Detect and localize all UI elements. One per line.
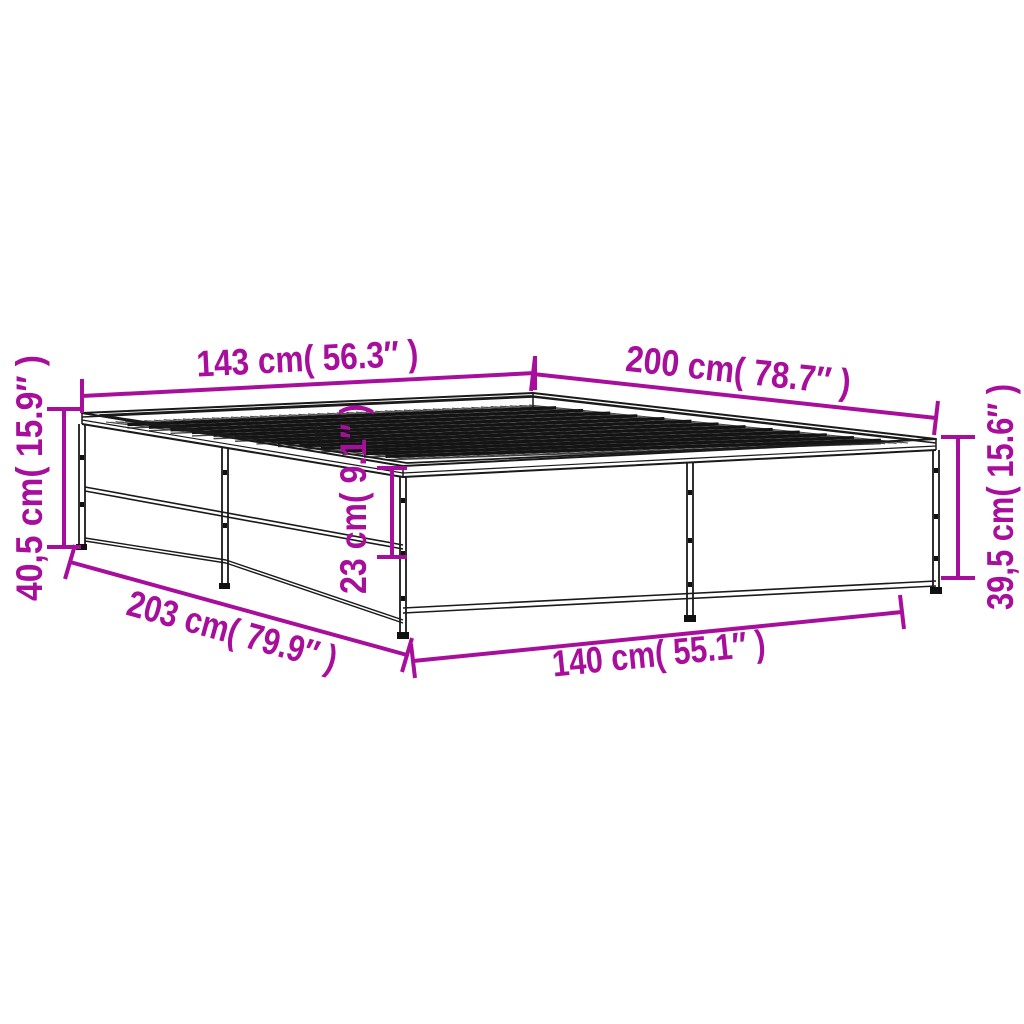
dimension-label-floor-width: 140 cm( 55.1″ ) [550,623,767,685]
bolt-mark [934,514,938,519]
foot-pad [930,587,942,594]
foot-bottom-rail [403,581,936,613]
dimension-label-right-height: 39,5 cm( 15.6″ ) [980,384,1021,610]
bolt-mark [688,490,692,495]
foot-pad [397,632,409,639]
dimension-line [47,409,81,547]
dimension-right-height: 39,5 cm( 15.6″ ) [941,384,1021,610]
bolt-mark [401,498,405,503]
dimension-label-top-length: 200 cm( 78.7″ ) [624,338,853,403]
dimension-annotations: 143 cm( 56.3″ ) 200 cm( 78.7″ ) 40,5 cm(… [9,332,1021,684]
bolt-mark [80,455,84,460]
bed-frame-dimension-svg: 143 cm( 56.3″ ) 200 cm( 78.7″ ) 40,5 cm(… [0,0,1024,1024]
dimension-top-width: 143 cm( 56.3″ ) [82,332,535,413]
leg-left-corner [79,424,85,545]
foot-pad [219,583,230,589]
bolt-mark [688,538,692,543]
bolt-mark [934,556,938,561]
dimension-label-left-height: 40,5 cm( 15.9″ ) [9,355,50,601]
bolt-mark [934,468,938,473]
dimension-label-rail-height: 23 cm( 9.1″ ) [333,404,374,594]
dimension-line [377,468,407,557]
bolt-mark [80,502,84,507]
bolt-mark [688,582,692,587]
diagram-canvas: 143 cm( 56.3″ ) 200 cm( 78.7″ ) 40,5 cm(… [0,0,1024,1024]
dimension-label-floor-length: 203 cm( 79.9″ ) [123,583,342,680]
dimension-line [941,437,975,578]
bolt-mark [223,470,227,475]
bolt-mark [223,523,227,528]
dimension-label-top-width: 143 cm( 56.3″ ) [195,332,419,384]
foot-pad [684,615,696,622]
bolt-mark [401,596,405,601]
slat-mesh [106,405,908,460]
